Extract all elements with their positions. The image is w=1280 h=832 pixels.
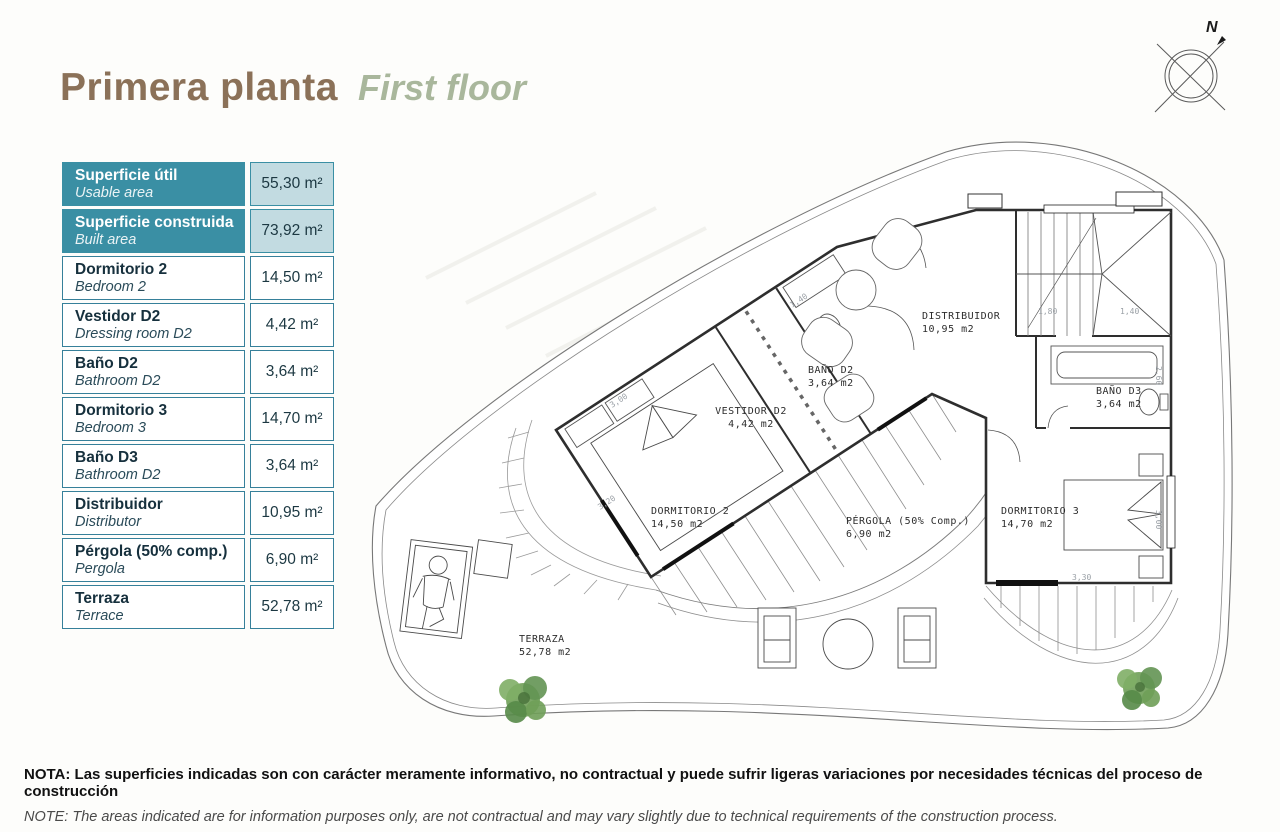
room-area-value: 3,64 m² — [250, 444, 334, 488]
north-arrow-icon — [1217, 36, 1226, 45]
table-row: Terraza Terrace 52,78 m² — [62, 585, 334, 629]
glass-door — [996, 580, 1058, 586]
table-row: Dormitorio 2 Bedroom 2 14,50 m² — [62, 256, 334, 300]
room-area-value: 14,70 m² — [250, 397, 334, 441]
room-area-value: 6,90 m² — [250, 538, 334, 582]
entry-step — [1116, 192, 1162, 206]
room-name-es: Baño D3 — [75, 448, 238, 467]
room-area-value: 10,95 m² — [250, 491, 334, 535]
note-english: NOTE: The areas indicated are for inform… — [24, 809, 1256, 825]
row-label: Dormitorio 2 Bedroom 2 — [62, 256, 245, 300]
dim-label: 3,30 — [1072, 573, 1091, 582]
room-label-dormitorio3: DORMITORIO 3 — [1001, 506, 1079, 517]
room-area-pergola: 6,90 m2 — [846, 529, 892, 540]
table-row: Baño D3 Bathroom D2 3,64 m² — [62, 444, 334, 488]
room-name-es: Superficie útil — [75, 166, 238, 185]
dim-label: 3,00 — [1154, 510, 1163, 529]
floor-plan-drawing: DORMITORIO 2 14,50 m2 VESTIDOR D2 4,42 m… — [356, 128, 1236, 748]
footnotes: NOTA: Las superficies indicadas son con … — [24, 766, 1256, 825]
room-name-en: Bathroom D2 — [75, 467, 238, 484]
room-name-es: Pérgola (50% comp.) — [75, 542, 238, 561]
table-row-built-area: Superficie construida Built area 73,92 m… — [62, 209, 334, 253]
compass-north-label: N — [1206, 19, 1218, 36]
room-area-bano-d2: 3,64 m2 — [808, 378, 854, 389]
title-spanish: Primera planta — [60, 66, 338, 109]
room-name-en: Bedroom 2 — [75, 279, 238, 296]
side-table-icon — [836, 270, 876, 310]
room-area-vestidor: 4,42 m2 — [728, 419, 774, 430]
table-row: Baño D2 Bathroom D2 3,64 m² — [62, 350, 334, 394]
row-label: Pérgola (50% comp.) Pergola — [62, 538, 245, 582]
room-name-es: Terraza — [75, 589, 238, 608]
table-row-usable-area: Superficie útil Usable area 55,30 m² — [62, 162, 334, 206]
floor-plan-page: Primera plantaFirst floor N Superficie ú… — [0, 0, 1280, 832]
room-area-distribuidor: 10,95 m2 — [922, 324, 974, 335]
room-name-en: Terrace — [75, 608, 238, 625]
tree-icon — [499, 676, 547, 723]
room-name-es: Dormitorio 3 — [75, 401, 238, 420]
room-name-en: Usable area — [75, 185, 238, 202]
room-label-bano-d3: BAÑO D3 — [1096, 384, 1142, 397]
room-area-bano-d3: 3,64 m2 — [1096, 399, 1142, 410]
page-title: Primera plantaFirst floor — [60, 66, 526, 110]
areas-table: Superficie útil Usable area 55,30 m² Sup… — [62, 162, 334, 632]
table-row: Dormitorio 3 Bedroom 3 14,70 m² — [62, 397, 334, 441]
room-label-terraza: TERRAZA — [519, 634, 565, 645]
row-label: Baño D2 Bathroom D2 — [62, 350, 245, 394]
room-label-distribuidor: DISTRIBUIDOR — [922, 311, 1001, 322]
row-label: Distribuidor Distributor — [62, 491, 245, 535]
room-label-vestidor: VESTIDOR D2 — [715, 406, 787, 417]
room-area-dormitorio3: 14,70 m2 — [1001, 519, 1053, 530]
room-name-en: Distributor — [75, 514, 238, 531]
window — [1167, 476, 1175, 548]
room-name-es: Baño D2 — [75, 354, 238, 373]
table-row: Pérgola (50% comp.) Pergola 6,90 m² — [62, 538, 334, 582]
room-label-dormitorio2: DORMITORIO 2 — [651, 506, 729, 517]
sun-lounger — [400, 540, 473, 639]
lounger-side-table — [474, 540, 512, 578]
nightstand — [1139, 556, 1163, 578]
room-area-value: 4,42 m² — [250, 303, 334, 347]
room-name-es: Distribuidor — [75, 495, 238, 514]
row-label: Superficie útil Usable area — [62, 162, 245, 206]
dim-label: 2,60 — [1154, 366, 1163, 385]
toilet-icon — [1139, 389, 1159, 415]
note-spanish: NOTA: Las superficies indicadas son con … — [24, 766, 1256, 800]
compass-rose: N — [1146, 12, 1246, 124]
room-area-value: 14,50 m² — [250, 256, 334, 300]
row-label: Terraza Terrace — [62, 585, 245, 629]
room-name-en: Bedroom 3 — [75, 420, 238, 437]
row-label: Superficie construida Built area — [62, 209, 245, 253]
room-area-value: 73,92 m² — [250, 209, 334, 253]
room-area-value: 52,78 m² — [250, 585, 334, 629]
compass-lines — [1155, 42, 1225, 112]
room-name-es: Vestidor D2 — [75, 307, 238, 326]
title-english: First floor — [358, 67, 526, 108]
room-name-en: Built area — [75, 232, 238, 249]
room-name-es: Dormitorio 2 — [75, 260, 238, 279]
room-name-en: Bathroom D2 — [75, 373, 238, 390]
room-area-dormitorio2: 14,50 m2 — [651, 519, 703, 530]
room-name-en: Dressing room D2 — [75, 326, 238, 343]
row-label: Dormitorio 3 Bedroom 3 — [62, 397, 245, 441]
dim-label: 1,40 — [1120, 307, 1139, 316]
row-label: Vestidor D2 Dressing room D2 — [62, 303, 245, 347]
dim-label: 1,80 — [1038, 307, 1057, 316]
room-area-value: 3,64 m² — [250, 350, 334, 394]
round-table-icon — [823, 619, 873, 669]
room-name-en: Pergola — [75, 561, 238, 578]
nightstand — [1139, 454, 1163, 476]
table-row: Distribuidor Distributor 10,95 m² — [62, 491, 334, 535]
room-label-pergola: PÉRGOLA (50% Comp.) — [846, 514, 970, 527]
room-area-value: 55,30 m² — [250, 162, 334, 206]
entry-step — [968, 194, 1002, 208]
room-area-terraza: 52,78 m2 — [519, 647, 571, 658]
row-label: Baño D3 Bathroom D2 — [62, 444, 245, 488]
room-name-es: Superficie construida — [75, 213, 238, 232]
room-label-bano-d2: BAÑO D2 — [808, 363, 854, 376]
table-row: Vestidor D2 Dressing room D2 4,42 m² — [62, 303, 334, 347]
